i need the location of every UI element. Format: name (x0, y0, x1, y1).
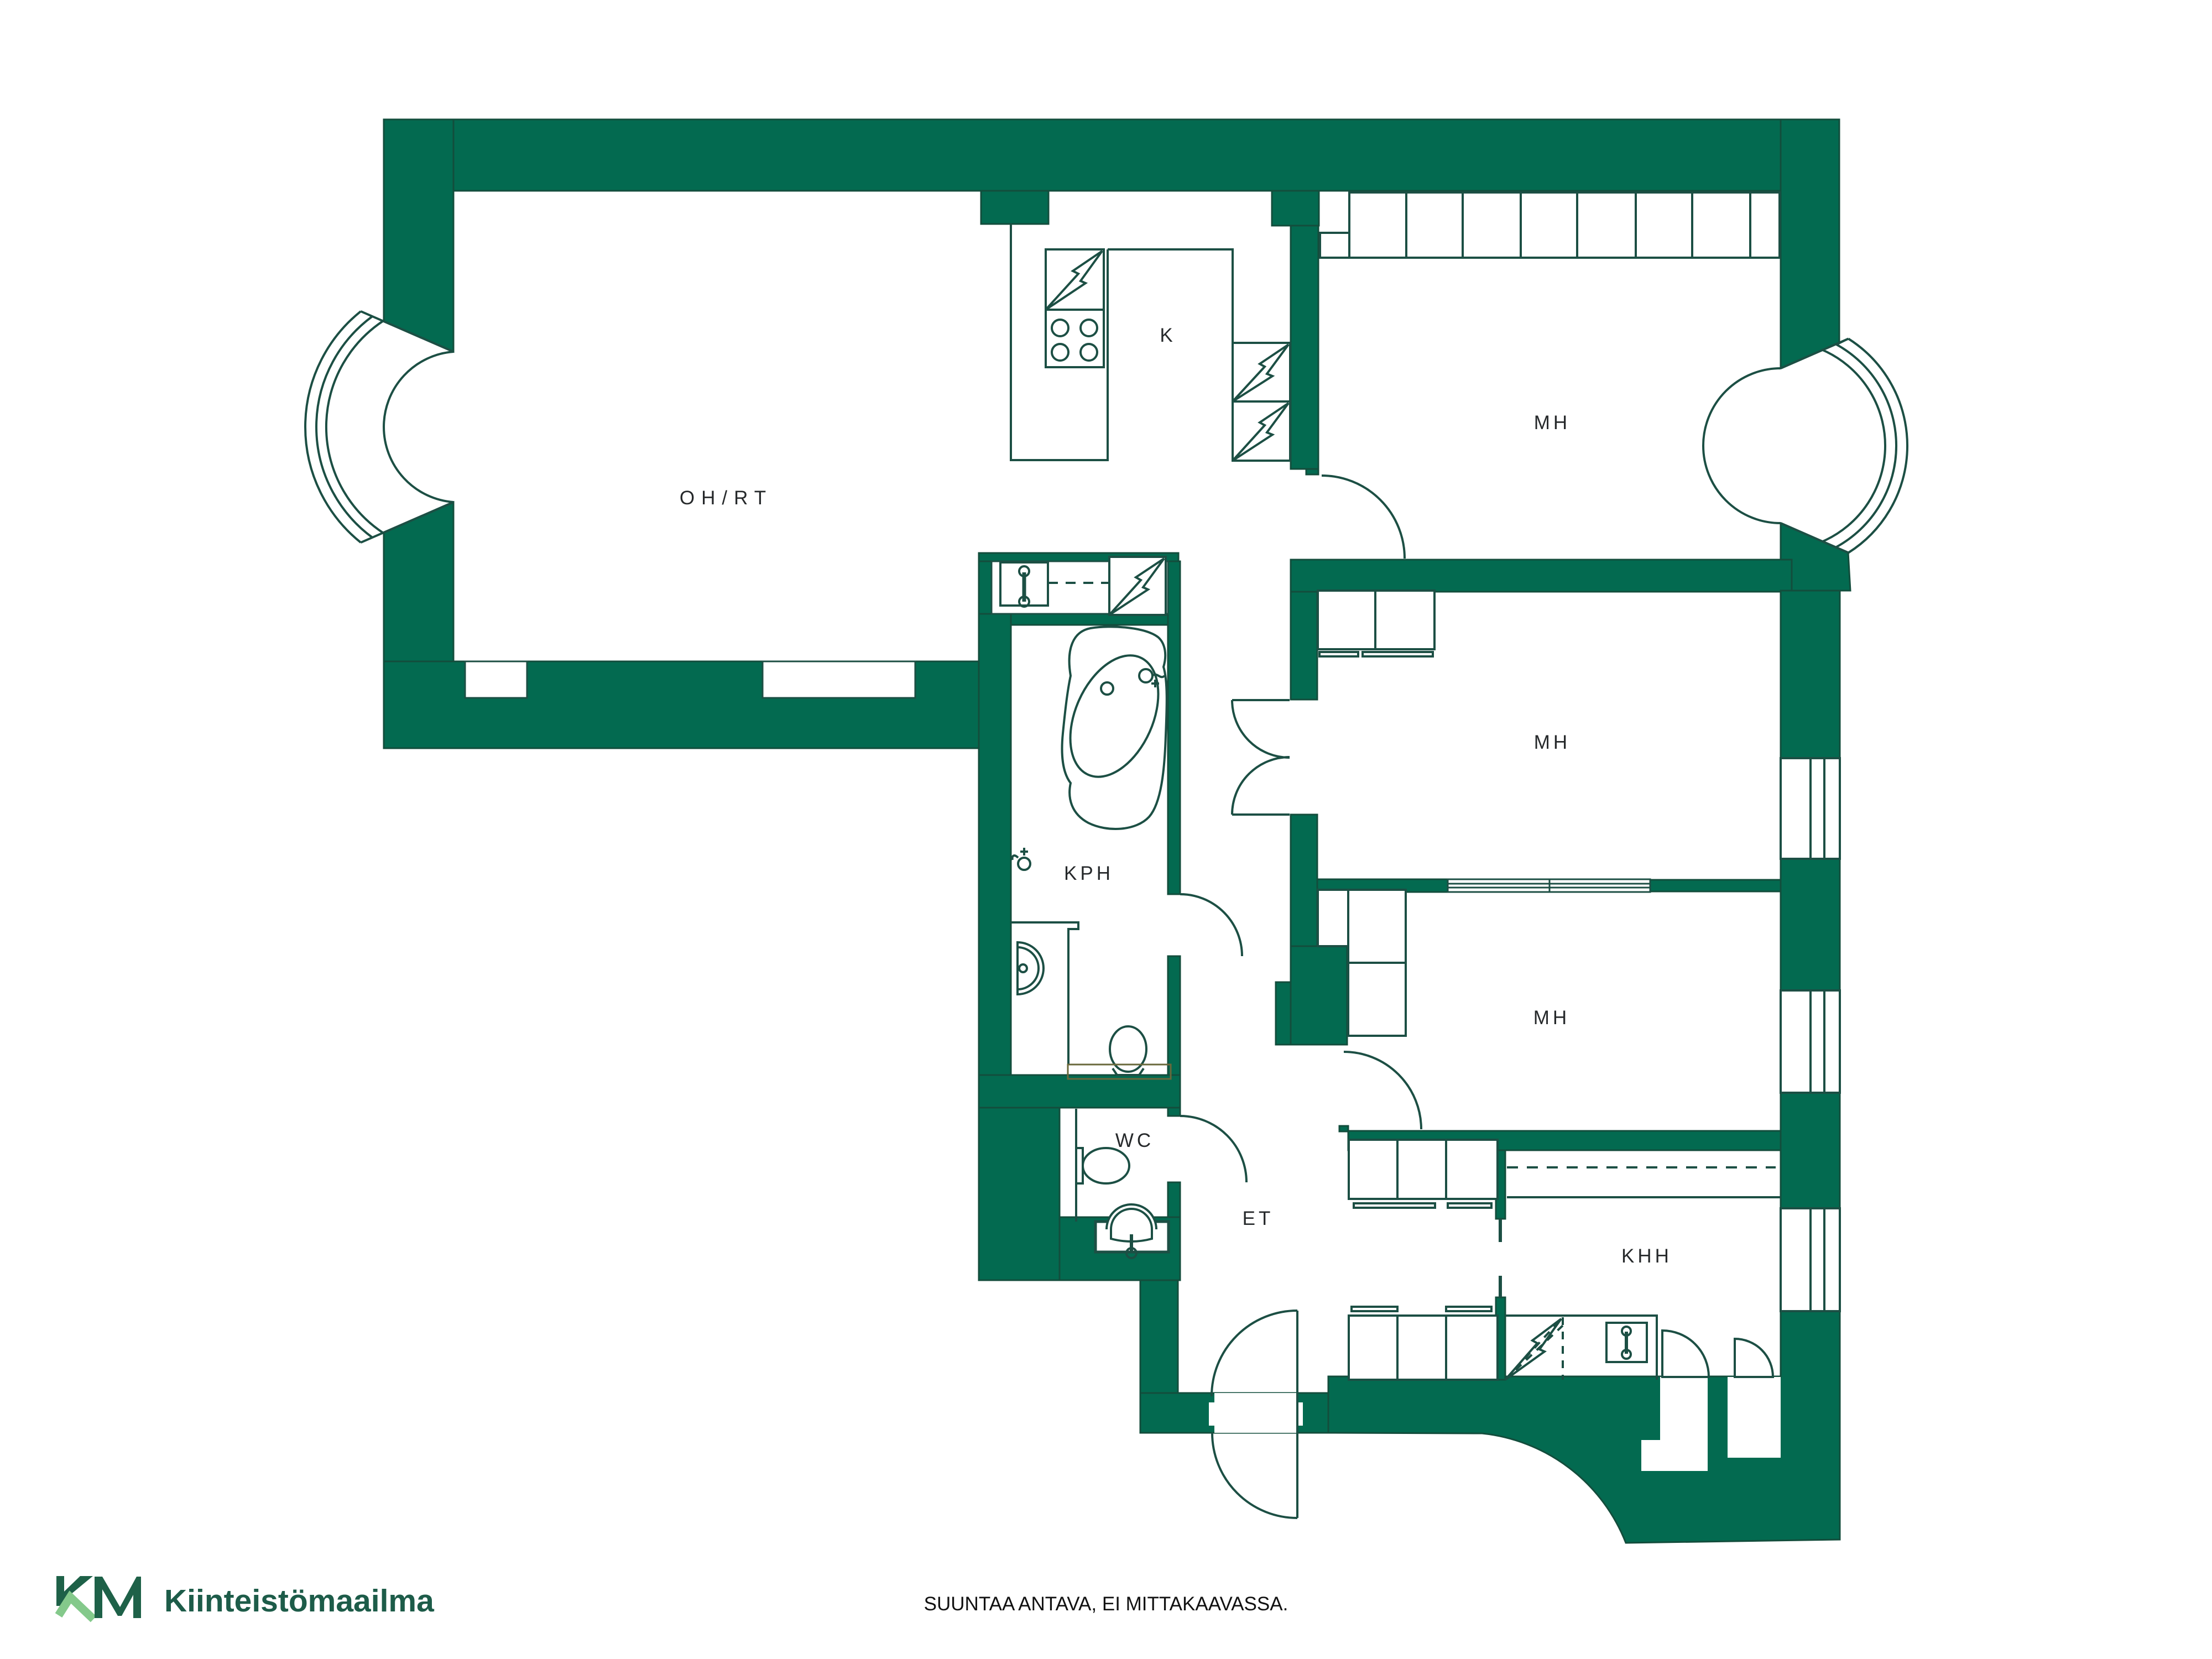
svg-text:OH/RT: OH/RT (680, 487, 773, 509)
svg-text:WC: WC (1115, 1130, 1154, 1151)
svg-text:Kiinteistömaailma: Kiinteistömaailma (164, 1583, 435, 1619)
svg-text:MH: MH (1533, 1007, 1570, 1029)
svg-text:K: K (1160, 325, 1176, 346)
svg-text:KPH: KPH (1064, 863, 1114, 884)
svg-text:SUUNTAA ANTAVA, EI MITTAKAAVAS: SUUNTAA ANTAVA, EI MITTAKAAVASSA. (924, 1593, 1288, 1615)
svg-text:KHH: KHH (1621, 1245, 1672, 1267)
svg-text:ET: ET (1243, 1208, 1274, 1229)
svg-text:MH: MH (1534, 412, 1571, 434)
svg-text:MH: MH (1534, 732, 1571, 753)
